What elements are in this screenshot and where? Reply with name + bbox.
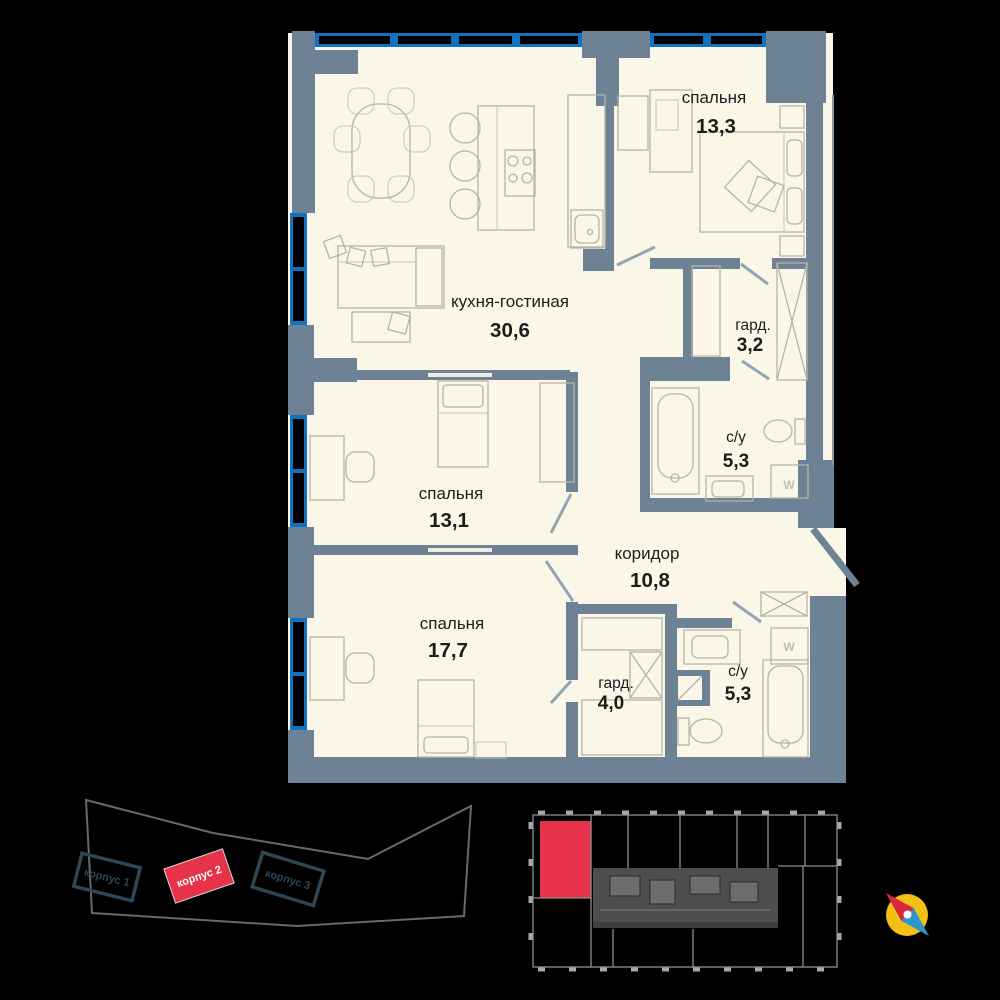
selected-unit-highlight[interactable] <box>540 821 591 898</box>
room-area-bathroom2: 5,3 <box>725 684 751 705</box>
room-name-corridor: коридор <box>615 544 680 563</box>
room-name-wardrobe1: гард. <box>735 317 771 334</box>
room-name-bedroom2: спальня <box>419 484 484 503</box>
room-name-bathroom1: с/у <box>726 429 746 446</box>
room-area-wardrobe2: 4,0 <box>598 693 624 714</box>
room-area-bedroom2: 13,1 <box>429 509 469 532</box>
site-boundary <box>86 800 471 926</box>
overview-core <box>593 868 778 928</box>
building-korpus-1[interactable]: корпус 1 <box>74 853 140 901</box>
room-name-bathroom2: с/у <box>728 663 748 680</box>
floor-overview <box>525 805 870 975</box>
room-area-wardrobe1: 3,2 <box>737 335 763 356</box>
room-area-kitchen: 30,6 <box>490 319 530 342</box>
room-area-bedroom3: 17,7 <box>428 639 468 662</box>
building-korpus-2[interactable]: корпус 2 <box>164 849 234 903</box>
page: W <box>0 0 1000 1000</box>
apartment-floor-plan: W <box>280 25 870 790</box>
room-area-bathroom1: 5,3 <box>723 451 749 472</box>
compass-hub <box>904 911 912 919</box>
svg-text:корпус 3: корпус 3 <box>264 867 312 892</box>
room-name-bedroom1: спальня <box>682 88 747 107</box>
room-name-kitchen: кухня-гостиная <box>451 292 569 311</box>
room-name-wardrobe2: гард. <box>598 675 634 692</box>
washer-label-2: W <box>783 640 795 654</box>
compass-icon <box>870 865 990 975</box>
room-area-bedroom1: 13,3 <box>696 115 736 138</box>
washer-label-1: W <box>783 478 795 492</box>
site-plan: корпус 1 корпус 2 корпус 3 <box>55 790 495 945</box>
room-area-corridor: 10,8 <box>630 569 670 592</box>
building-korpus-3[interactable]: корпус 3 <box>252 852 324 905</box>
room-name-bedroom3: спальня <box>420 614 485 633</box>
